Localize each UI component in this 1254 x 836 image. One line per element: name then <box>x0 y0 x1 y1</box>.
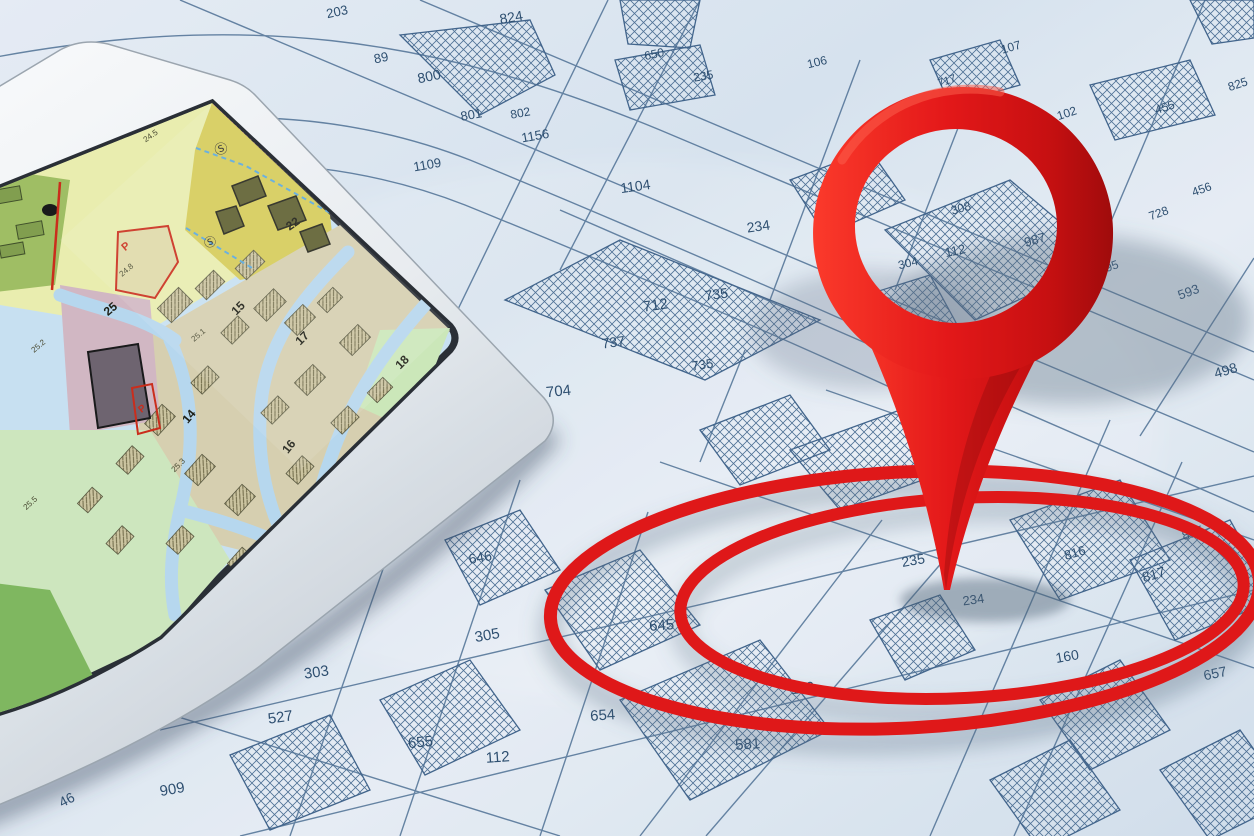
vignette <box>0 0 1254 836</box>
cadastral-map-scene: 2038248980080180211561109110423465023510… <box>0 0 1254 836</box>
scene-canvas: 2038248980080180211561109110423465023510… <box>0 0 1254 836</box>
